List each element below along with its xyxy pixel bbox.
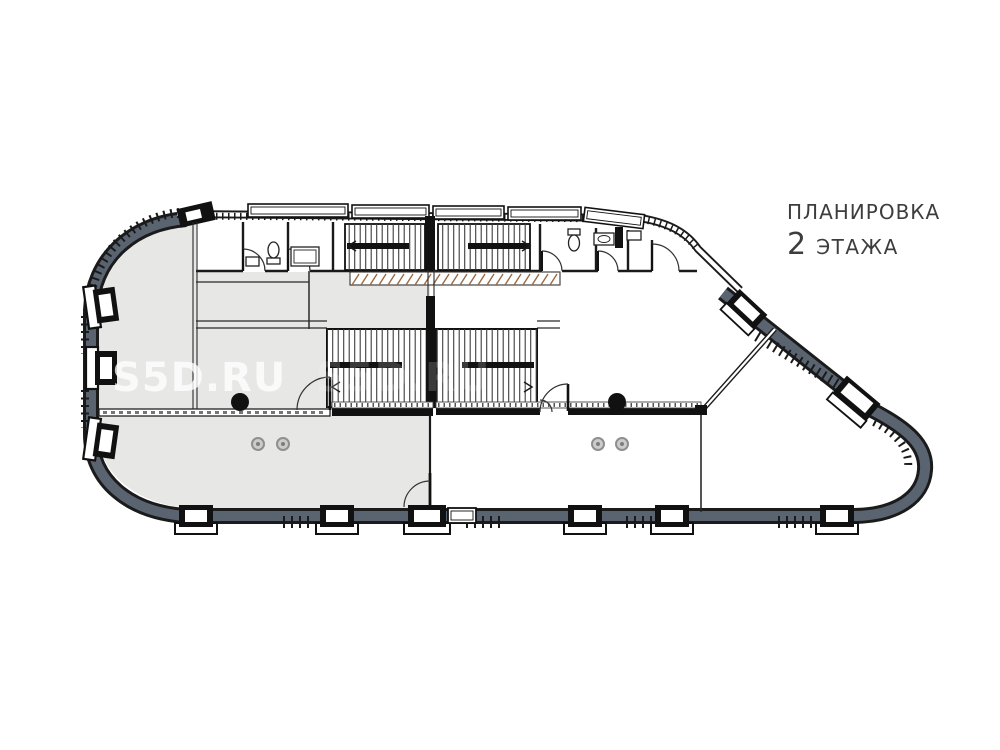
toilet-bowl xyxy=(268,242,279,258)
floor-plan-drawing xyxy=(0,0,1000,750)
window xyxy=(86,347,117,389)
diagonal-glass-wall xyxy=(695,329,775,415)
left-facade-windows xyxy=(83,283,120,463)
window xyxy=(564,505,606,534)
toilet-bowl xyxy=(569,235,580,251)
window xyxy=(404,505,476,534)
window xyxy=(816,505,858,534)
floor-number: 2 xyxy=(787,227,807,262)
sink xyxy=(246,257,259,266)
plan-title-block: ПЛАНИРОВКА 2 ЭТАЖА xyxy=(787,200,940,262)
toilet-tank xyxy=(568,229,580,235)
cabinet xyxy=(627,231,641,240)
party-wall xyxy=(425,216,435,272)
window xyxy=(651,505,693,534)
plan-title-line2: 2 ЭТАЖА xyxy=(787,227,940,262)
staircase-upper xyxy=(345,216,560,285)
floor-plan-page: S5D.RU S5D.RU ПЛАНИРОВКА 2 ЭТАЖА xyxy=(0,0,1000,750)
duct xyxy=(615,227,623,248)
toilet-tank xyxy=(267,258,280,264)
column xyxy=(608,393,626,411)
column xyxy=(231,393,249,411)
floor-word: ЭТАЖА xyxy=(816,235,899,259)
plan-title-line1: ПЛАНИРОВКА xyxy=(787,200,940,224)
window xyxy=(316,505,358,534)
party-wall xyxy=(426,296,435,408)
window xyxy=(175,505,217,534)
